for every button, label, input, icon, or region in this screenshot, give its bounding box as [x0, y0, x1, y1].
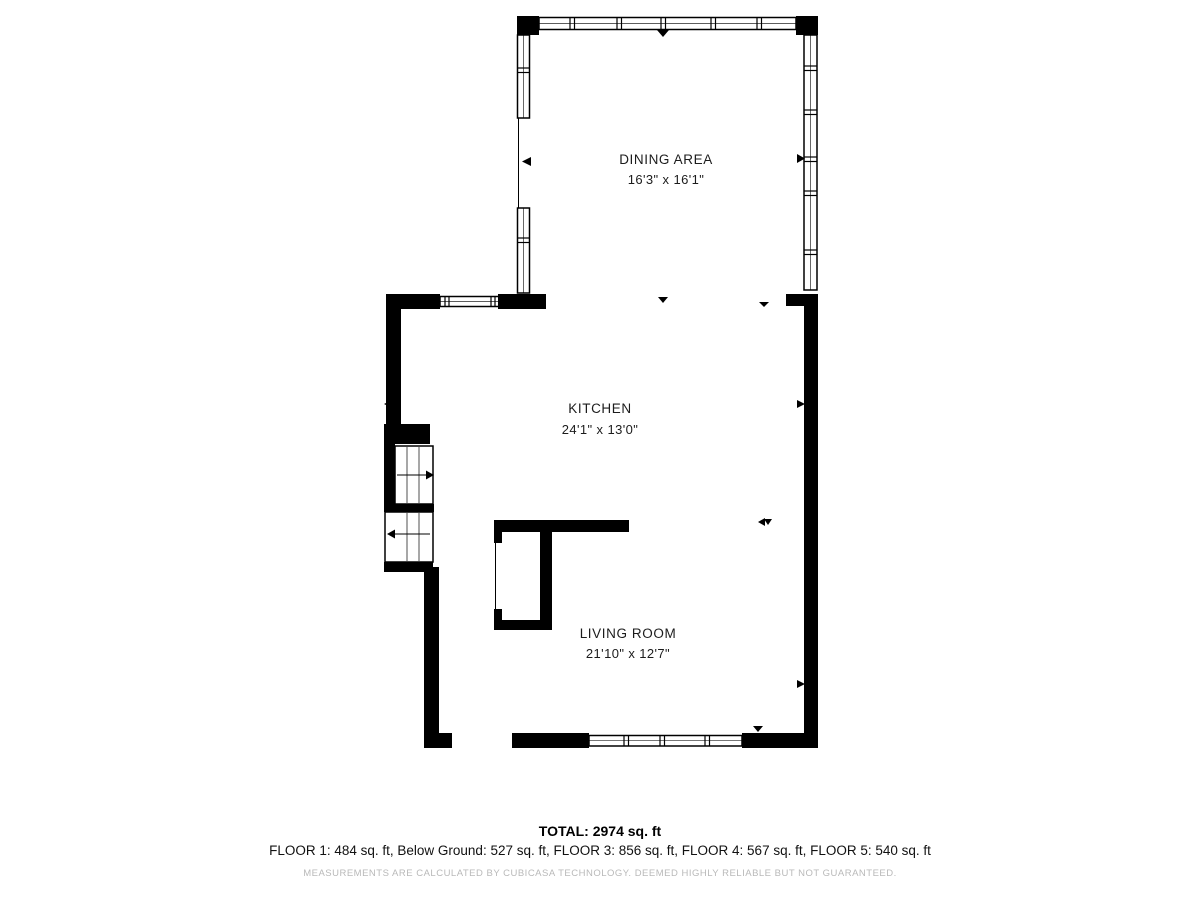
direction-arrow — [764, 519, 772, 525]
floor-plan-page: DINING AREA 16'3" x 16'1" — [0, 0, 1200, 900]
exterior-wall-segment — [804, 294, 818, 748]
total-area-text: TOTAL: 2974 sq. ft — [539, 823, 662, 839]
exterior-wall-segment — [742, 733, 818, 748]
wall-corner — [517, 16, 539, 35]
stair-header-wall — [384, 424, 430, 444]
exterior-wall-segment — [424, 567, 439, 748]
direction-arrow — [522, 157, 531, 166]
wall-stub — [786, 294, 804, 306]
living-room-dimensions: 21'10" x 12'7" — [586, 646, 670, 661]
direction-arrow — [759, 302, 769, 307]
direction-arrow — [657, 30, 669, 37]
exterior-wall-segment — [498, 294, 546, 309]
direction-arrow — [797, 400, 805, 408]
direction-arrow — [753, 726, 763, 732]
dining-area-dimensions: 16'3" x 16'1" — [628, 172, 705, 187]
window-band-left — [518, 35, 532, 293]
stair-flight-lower — [385, 512, 433, 562]
footer: TOTAL: 2974 sq. ft FLOOR 1: 484 sq. ft, … — [269, 823, 931, 879]
kitchen-dimensions: 24'1" x 13'0" — [562, 422, 639, 437]
direction-arrow — [758, 518, 765, 526]
wall-stub — [494, 609, 502, 620]
floor-plan-drawing: DINING AREA 16'3" x 16'1" — [0, 0, 1200, 900]
fireplace-structure — [494, 520, 629, 630]
living-room-room: LIVING ROOM 21'10" x 12'7" — [424, 518, 818, 748]
staircase — [384, 424, 434, 572]
dining-area-label: DINING AREA — [619, 152, 713, 167]
living-room-label: LIVING ROOM — [580, 626, 677, 641]
direction-arrow — [658, 297, 668, 303]
window-band-top — [539, 18, 796, 38]
kitchen-top-window — [440, 297, 500, 307]
window-band-bottom — [589, 736, 742, 747]
stair-side-wall — [384, 444, 395, 504]
window-band-right — [797, 35, 817, 290]
wall-corner — [796, 16, 818, 35]
exterior-wall-segment — [424, 733, 452, 748]
interior-wall — [540, 532, 552, 630]
direction-arrow — [797, 680, 805, 688]
interior-wall — [494, 620, 552, 630]
kitchen-label: KITCHEN — [568, 401, 631, 416]
stair-divider-wall — [384, 504, 434, 512]
disclaimer-text: MEASUREMENTS ARE CALCULATED BY CUBICASA … — [303, 868, 897, 879]
floor-breakdown-text: FLOOR 1: 484 sq. ft, Below Ground: 527 s… — [269, 843, 931, 858]
wall-stub — [494, 532, 502, 543]
interior-wall — [494, 520, 629, 532]
dining-area-room: DINING AREA 16'3" x 16'1" — [517, 16, 818, 293]
exterior-wall-segment — [512, 733, 589, 748]
